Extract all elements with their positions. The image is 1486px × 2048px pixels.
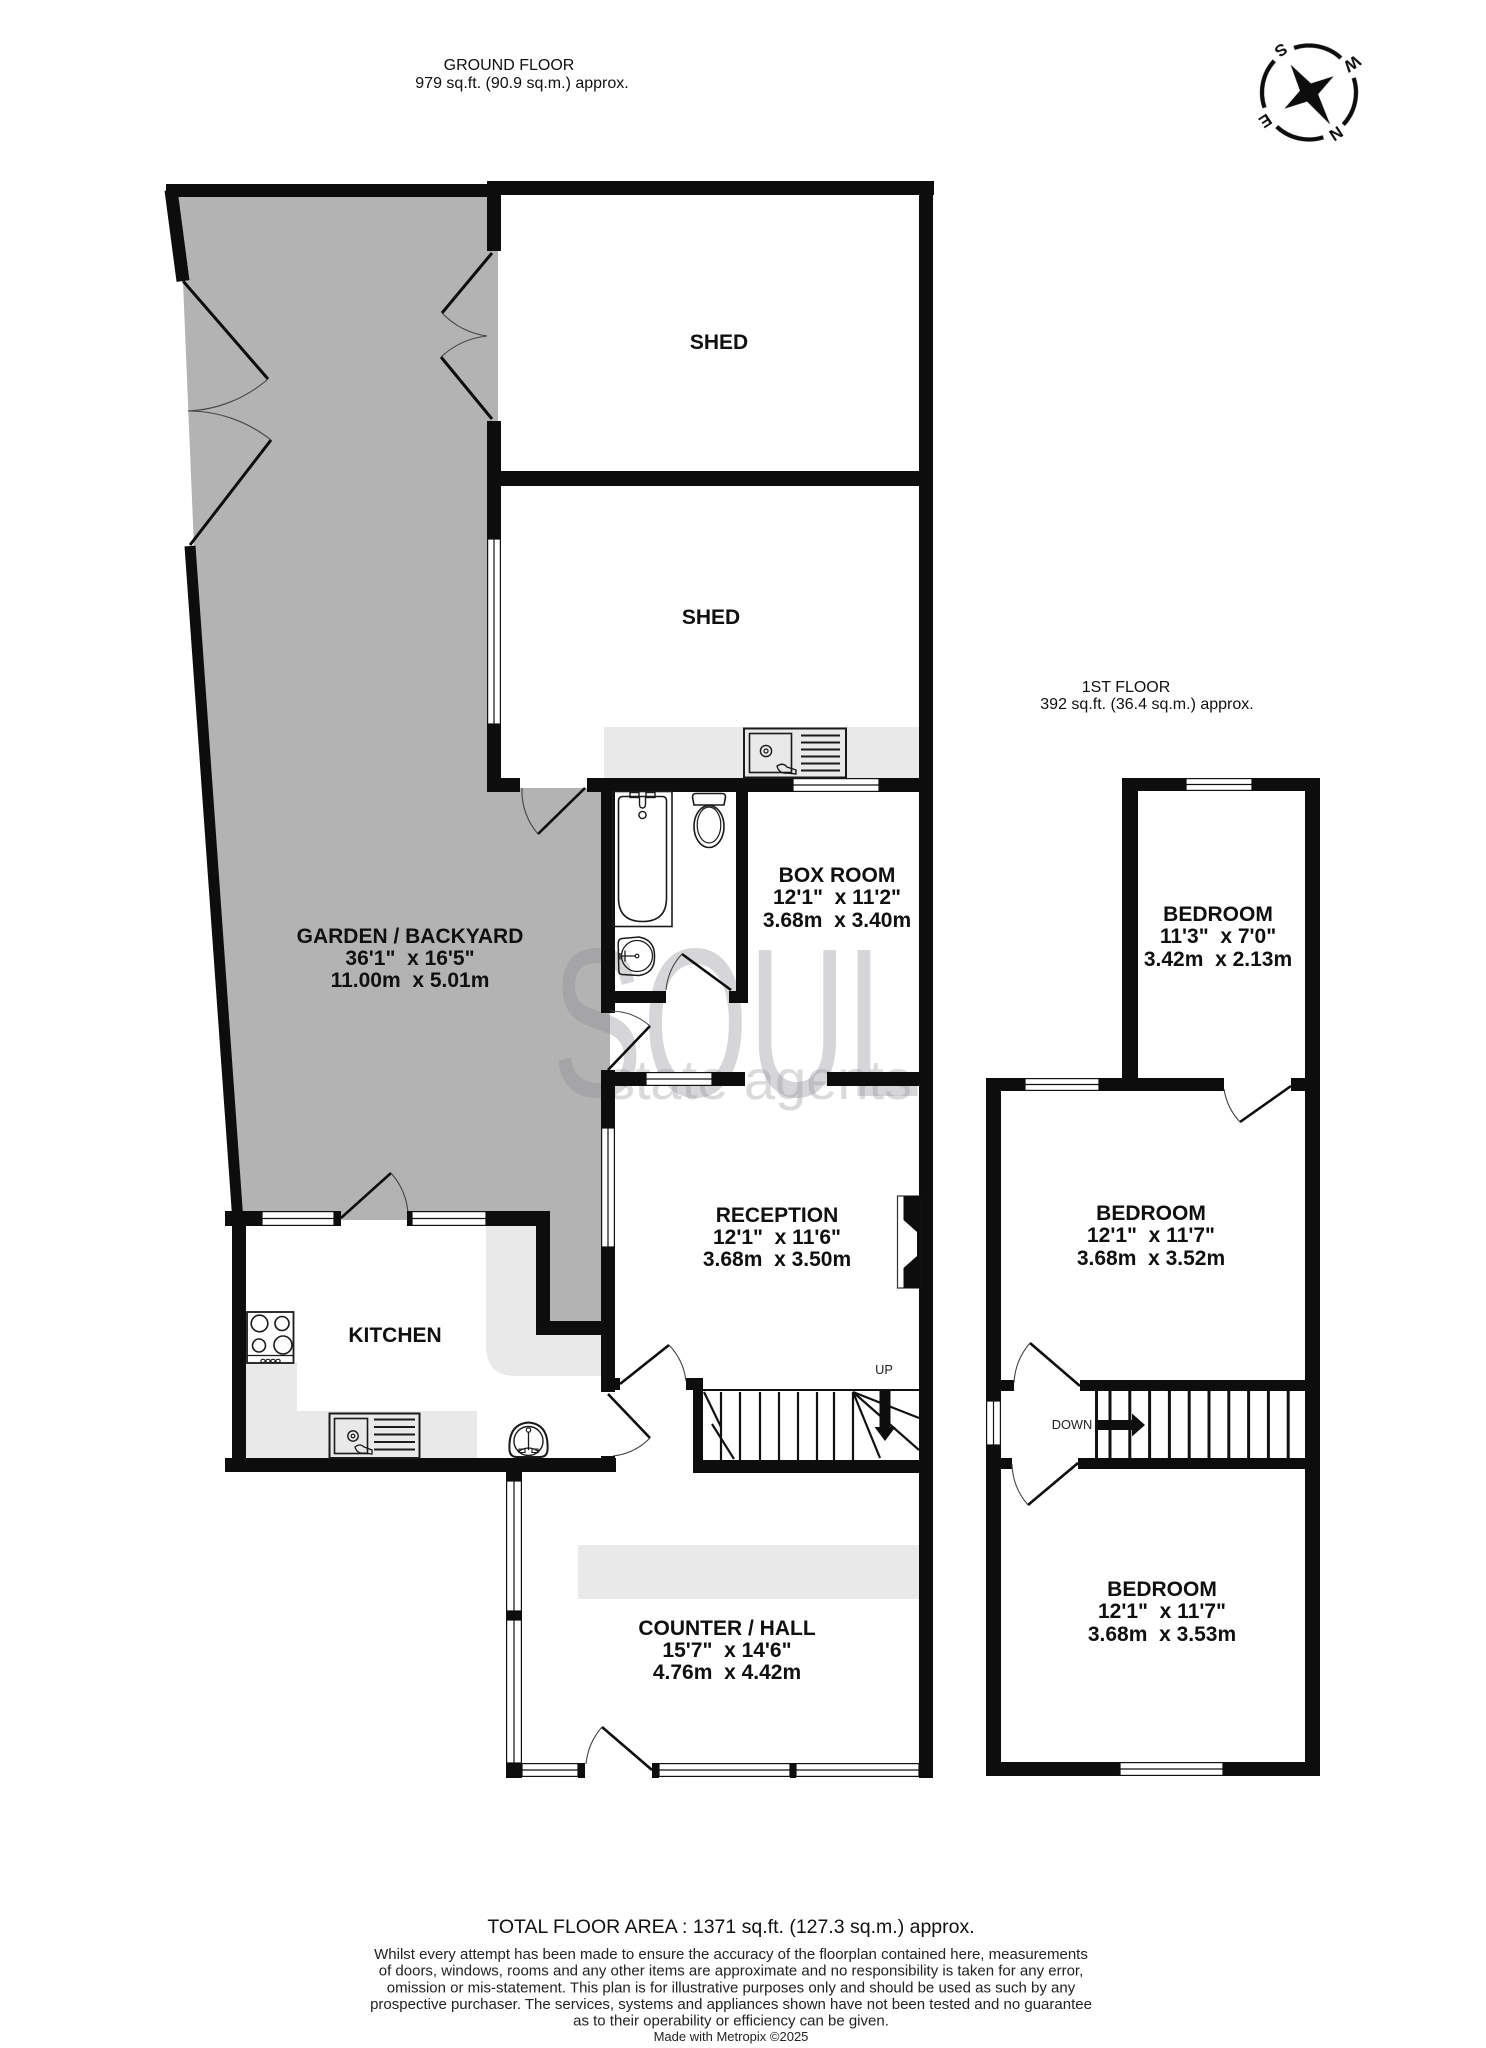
svg-text:GARDEN / BACKYARD: GARDEN / BACKYARD [297, 925, 524, 948]
svg-text:RECEPTION: RECEPTION [716, 1204, 839, 1227]
svg-text:COUNTER / HALL: COUNTER / HALL [638, 1617, 815, 1640]
svg-text:1ST FLOOR: 1ST FLOOR [1082, 679, 1171, 696]
svg-text:DOWN: DOWN [1052, 1417, 1093, 1432]
svg-text:as to their operability or eff: as to their operability or efficiency ca… [573, 2013, 889, 2030]
svg-text:TOTAL FLOOR AREA : 1371 sq.ft.: TOTAL FLOOR AREA : 1371 sq.ft. (127.3 sq… [487, 1916, 974, 1938]
svg-text:392 sq.ft. (36.4 sq.m.) approx: 392 sq.ft. (36.4 sq.m.) approx. [1040, 696, 1253, 713]
svg-text:GROUND FLOOR: GROUND FLOOR [444, 57, 575, 74]
svg-text:of doors, windows, rooms and a: of doors, windows, rooms and any other i… [379, 1963, 1084, 1980]
svg-text:3.68m x 3.53m: 3.68m x 3.53m [1088, 1623, 1236, 1646]
svg-text:KITCHEN: KITCHEN [348, 1324, 441, 1347]
svg-text:11'3" x 7'0": 11'3" x 7'0" [1160, 925, 1276, 948]
svg-text:BEDROOM: BEDROOM [1107, 1578, 1217, 1601]
svg-text:12'1" x 11'6": 12'1" x 11'6" [713, 1226, 841, 1249]
svg-text:Whilst every attempt has been: Whilst every attempt has been made to en… [374, 1946, 1088, 1963]
svg-text:BOX ROOM: BOX ROOM [779, 864, 896, 887]
svg-text:12'1" x 11'7": 12'1" x 11'7" [1087, 1224, 1215, 1247]
svg-text:3.42m x 2.13m: 3.42m x 2.13m [1144, 948, 1292, 971]
svg-text:12'1" x 11'7": 12'1" x 11'7" [1098, 1600, 1226, 1623]
svg-text:SHED: SHED [682, 606, 740, 629]
svg-text:3.68m x 3.52m: 3.68m x 3.52m [1077, 1247, 1225, 1270]
svg-text:3.68m x 3.40m: 3.68m x 3.40m [763, 909, 911, 932]
svg-text:Made with Metropix ©2025: Made with Metropix ©2025 [654, 2029, 809, 2044]
svg-text:11.00m x 5.01m: 11.00m x 5.01m [331, 969, 490, 992]
svg-text:prospective purchaser. The ser: prospective purchaser. The services, sys… [370, 1996, 1092, 2013]
svg-text:3.68m x 3.50m: 3.68m x 3.50m [703, 1248, 851, 1271]
svg-text:979 sq.ft. (90.9 sq.m.) approx: 979 sq.ft. (90.9 sq.m.) approx. [415, 75, 628, 92]
svg-text:4.76m x 4.42m: 4.76m x 4.42m [653, 1661, 801, 1684]
svg-text:36'1" x 16'5": 36'1" x 16'5" [345, 947, 474, 970]
svg-text:SHED: SHED [690, 331, 748, 354]
svg-text:omission or mis-statement. Thi: omission or mis-statement. This plan is … [387, 1979, 1076, 1996]
svg-text:12'1" x 11'2": 12'1" x 11'2" [773, 886, 901, 909]
svg-text:15'7" x 14'6": 15'7" x 14'6" [662, 1639, 791, 1662]
svg-text:UP: UP [875, 1362, 893, 1377]
svg-text:BEDROOM: BEDROOM [1096, 1202, 1206, 1225]
svg-text:BEDROOM: BEDROOM [1163, 903, 1273, 926]
